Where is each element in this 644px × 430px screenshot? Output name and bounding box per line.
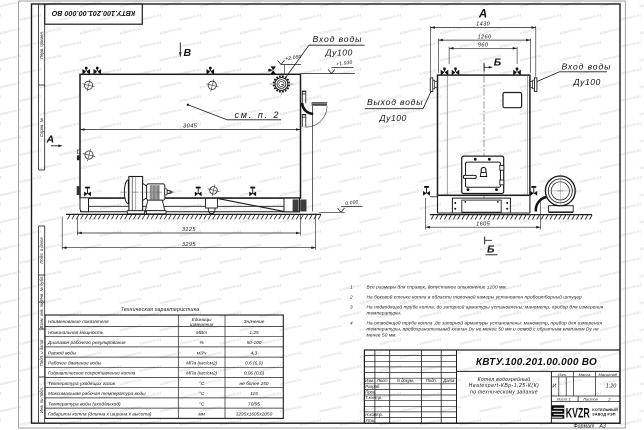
svg-text:Значение: Значение (244, 319, 265, 325)
svg-text:4,3: 4,3 (251, 350, 258, 356)
svg-text:3125: 3125 (182, 227, 197, 233)
svg-text:Температура воды (вход/выход): Температура воды (вход/выход) (48, 401, 121, 407)
svg-text:Расход воды: Расход воды (48, 350, 77, 356)
svg-text:Листов: Листов (582, 397, 598, 402)
svg-text:КОТЕЛЬНЫЙ: КОТЕЛЬНЫЙ (592, 408, 618, 412)
svg-text:м3/ч: м3/ч (197, 350, 207, 356)
svg-text:Гидравлическое сопротивление к: Гидравлическое сопротивление котла (48, 371, 136, 377)
svg-text:На отводящей трубе котла ,до з: На отводящей трубе котла ,до запорной ар… (367, 320, 603, 326)
svg-text:Техническая характеристика: Техническая характеристика (121, 307, 200, 313)
svg-text:температуры, предохранительный: температуры, предохранительный клапан Dу… (367, 326, 600, 332)
svg-text:Инв. № дубл.: Инв. № дубл. (39, 276, 44, 302)
svg-text:МПа (кгс/см2): МПа (кгс/см2) (186, 361, 217, 367)
svg-text:Лит.: Лит. (557, 372, 567, 377)
svg-text:Лист: Лист (376, 378, 388, 383)
svg-text:МПа (кгс/см2): МПа (кгс/см2) (186, 371, 217, 377)
svg-text:Масса: Масса (579, 372, 592, 377)
svg-text:1605: 1605 (476, 221, 491, 227)
svg-text:менее 50 мм.: менее 50 мм. (367, 333, 397, 338)
svg-text:3295х1605х2050: 3295х1605х2050 (236, 412, 273, 418)
svg-text:Ду100: Ду100 (573, 77, 601, 87)
svg-text:1,25: 1,25 (249, 330, 259, 336)
svg-text:по техническому задание: по техническому задание (470, 389, 538, 395)
svg-text:Инв. № подл.: Инв. № подл. (39, 387, 44, 413)
svg-text:И: И (552, 383, 556, 389)
svg-text:Подп.: Подп. (426, 378, 437, 383)
svg-text:50-100: 50-100 (247, 340, 262, 346)
svg-text:Рабочее давление воды: Рабочее давление воды (48, 361, 102, 367)
svg-text:Выход воды: Выход воды (367, 97, 423, 107)
svg-text:KVZR: KVZR (566, 406, 590, 421)
svg-text:Все размеры для справок, допус: Все размеры для справок, допустимое откл… (367, 285, 508, 290)
svg-text:Б: Б (487, 244, 495, 256)
svg-text:Heatexpert-КВр-1,25-К(К): Heatexpert-КВр-1,25-К(К) (469, 383, 540, 389)
svg-text:2: 2 (349, 295, 353, 300)
svg-text:Подп. и дата: Подп. и дата (39, 237, 44, 264)
svg-text:3045: 3045 (183, 124, 198, 130)
svg-text:КВТУ.100.201.00.000 ВО: КВТУ.100.201.00.000 ВО (51, 9, 135, 17)
svg-text:1430: 1430 (476, 22, 491, 28)
svg-text:не более 250: не более 250 (240, 381, 269, 387)
svg-text:Температура уходящих газов: Температура уходящих газов (48, 381, 115, 387)
svg-text:Лист: Лист (556, 397, 568, 402)
svg-text:Ду100: Ду100 (379, 113, 407, 123)
svg-text:Диапазон рабочего регулировани: Диапазон рабочего регулирования (47, 340, 126, 346)
svg-text:Утв.: Утв. (365, 418, 375, 423)
svg-text:КВТУ.100.201.00.000 ВО: КВТУ.100.201.00.000 ВО (476, 357, 597, 368)
svg-text:Справ. №: Справ. № (39, 118, 44, 137)
svg-text:Масштаб: Масштаб (598, 372, 617, 377)
svg-text:Перв. примен.: Перв. примен. (39, 31, 44, 59)
svg-text:А: А (46, 134, 55, 146)
svg-text:А3: А3 (599, 424, 607, 430)
svg-text:Изм.: Изм. (365, 378, 374, 383)
svg-text:Ду100: Ду100 (325, 48, 353, 58)
svg-text:0,6 (6,0): 0,6 (6,0) (245, 361, 263, 367)
svg-text:Вход воды: Вход воды (562, 62, 612, 72)
svg-text:температуры.: температуры. (367, 311, 402, 316)
svg-text:N докум.: N докум. (397, 378, 414, 383)
svg-text:Б: Б (494, 57, 502, 69)
svg-text:Наименование показателя: Наименование показателя (48, 319, 109, 325)
svg-text:3: 3 (350, 305, 353, 310)
svg-text:Габариты котла (длинна х ширин: Габариты котла (длинна х ширина х высота… (48, 412, 152, 418)
svg-text:1:20: 1:20 (606, 384, 617, 390)
svg-text:115: 115 (250, 391, 258, 397)
svg-text:0,06 (0,6): 0,06 (0,6) (244, 371, 265, 377)
svg-text:Взам. инв. №: Взам. инв. № (39, 302, 44, 328)
svg-text:Подп. и дата: Подп. и дата (39, 339, 44, 366)
svg-text:°С: °С (199, 401, 205, 407)
svg-text:На подводящей трубе котла, д: На подводящей трубе котла, до запорной а… (367, 304, 604, 310)
svg-text:Формат: Формат (574, 424, 595, 430)
svg-text:МВт: МВт (196, 330, 207, 336)
svg-text:°С: °С (199, 381, 205, 387)
svg-text:Максимальная рабочая температу: Максимальная рабочая температура воды (48, 391, 146, 397)
svg-text:Единицы: Единицы (192, 317, 212, 323)
svg-text:Т.контр.: Т.контр. (365, 395, 382, 400)
svg-text:4: 4 (350, 321, 353, 326)
svg-text:Н.контр.: Н.контр. (365, 412, 383, 417)
svg-text:960: 960 (478, 43, 489, 49)
svg-text:Пров.: Пров. (365, 389, 376, 394)
svg-text:°С: °С (199, 391, 205, 397)
svg-text:Вход воды: Вход воды (313, 34, 363, 44)
svg-text:3295: 3295 (182, 242, 197, 248)
svg-text:70/95: 70/95 (248, 401, 260, 407)
svg-text:ЗАВОД РЭП: ЗАВОД РЭП (592, 413, 615, 417)
svg-text:Разраб.: Разраб. (365, 384, 380, 389)
svg-text:Котел водогрейный: Котел водогрейный (478, 376, 531, 383)
svg-text:мм: мм (198, 413, 205, 418)
svg-text:1: 1 (569, 397, 571, 402)
svg-text:см. п. 2: см. п. 2 (235, 110, 281, 120)
svg-text:Дата: Дата (442, 378, 455, 383)
svg-text:В: В (184, 47, 192, 59)
svg-text:измерения: измерения (190, 323, 214, 328)
svg-text:На боковой стенке котла в обла: На боковой стенке котла в области топочн… (367, 294, 583, 300)
svg-text:А: А (478, 9, 487, 21)
svg-text:1: 1 (350, 285, 353, 290)
svg-text:1260: 1260 (477, 34, 492, 40)
svg-text:Номинальная мощность: Номинальная мощность (48, 330, 104, 336)
